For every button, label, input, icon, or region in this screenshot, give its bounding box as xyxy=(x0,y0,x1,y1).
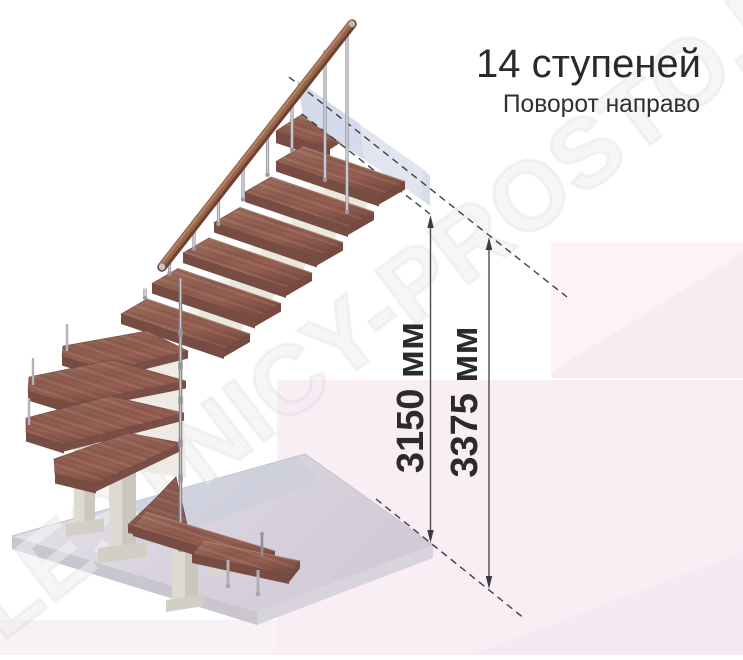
svg-text:Поворот направо: Поворот направо xyxy=(503,91,700,118)
svg-text:3150 мм: 3150 мм xyxy=(390,322,432,473)
svg-text:14 ступеней: 14 ступеней xyxy=(476,42,701,86)
svg-text:3375 мм: 3375 мм xyxy=(444,326,486,477)
